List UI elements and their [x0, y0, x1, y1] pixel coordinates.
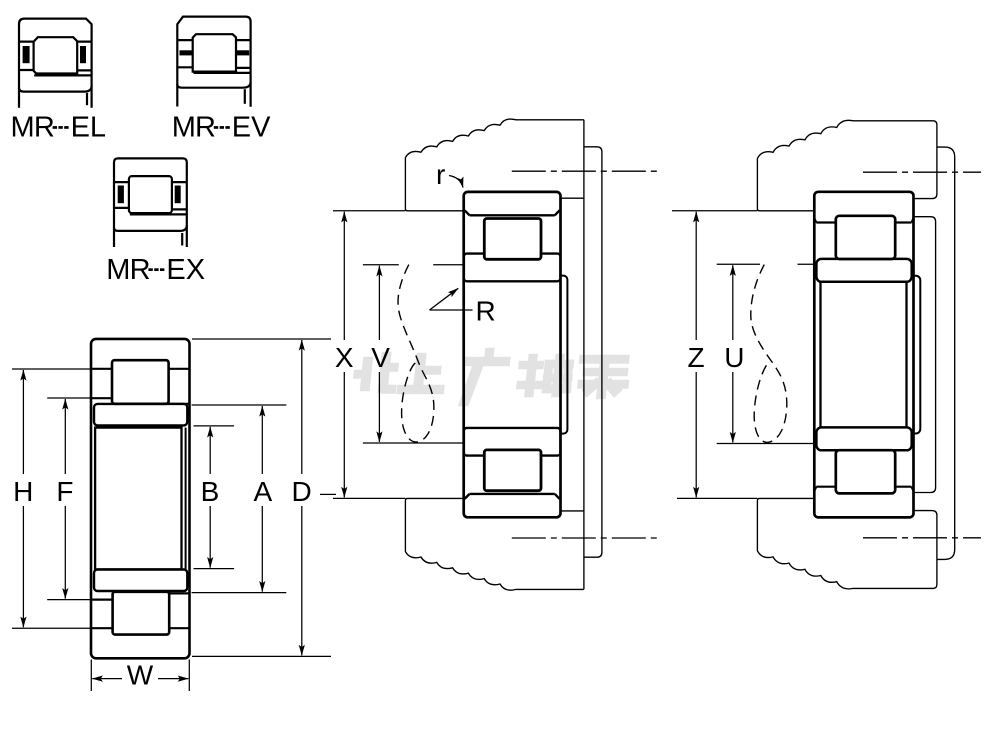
svg-text:Z: Z: [688, 342, 705, 373]
svg-text:MR: MR: [106, 254, 150, 286]
svg-text:MR: MR: [11, 112, 55, 144]
svg-text:EX: EX: [166, 254, 205, 286]
svg-text:W: W: [127, 659, 154, 690]
svg-text:U: U: [724, 342, 744, 373]
svg-text:MR: MR: [172, 112, 216, 144]
svg-text:r: r: [436, 159, 445, 190]
svg-text:R: R: [476, 295, 496, 326]
svg-text:EL: EL: [71, 112, 106, 144]
svg-text:F: F: [56, 476, 73, 507]
svg-text:B: B: [201, 476, 220, 507]
svg-text:D: D: [291, 476, 311, 507]
svg-text:A: A: [253, 476, 272, 507]
svg-text:X: X: [335, 342, 354, 373]
svg-text:EV: EV: [232, 112, 271, 144]
svg-text:H: H: [13, 476, 33, 507]
